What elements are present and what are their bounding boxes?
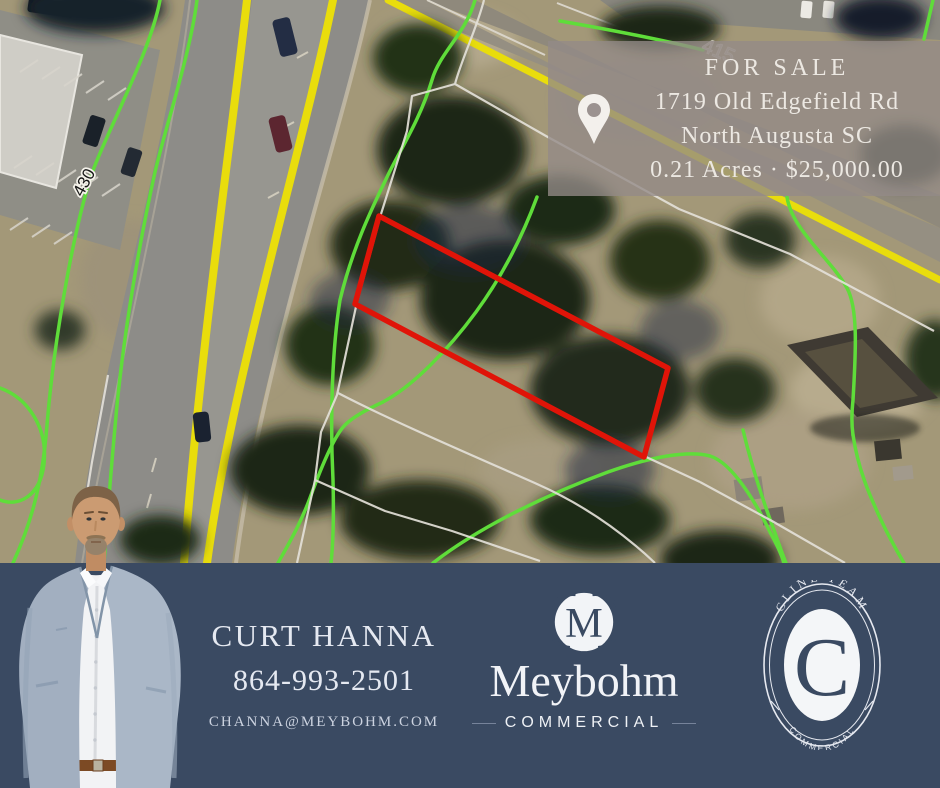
agent-phone: 864-993-2501 [194, 664, 454, 697]
badge-initial: C [794, 621, 850, 714]
agent-name: CURT HANNA [194, 619, 454, 653]
listing-card: FOR SALE 1719 Old Edgefield Rd North Aug… [548, 41, 940, 196]
agent-goatee [85, 537, 107, 555]
agent-contact-block: CURT HANNA 864-993-2501 CHANNA@MEYBOHM.C… [194, 563, 454, 731]
belt-buckle [93, 760, 103, 771]
meybohm-initial: M [565, 600, 603, 647]
badge-team-name: CLINE TEAM [772, 580, 871, 614]
brand-division-row: COMMERCIAL [464, 714, 704, 732]
svg-text:COMMERCIAL: COMMERCIAL [787, 725, 856, 750]
flyer-canvas: 430 415 FOR SALE 1719 Old Edgefield Rd N… [0, 0, 940, 788]
agent-head [67, 486, 125, 571]
cline-team-badge: C CLINE TEAM COMMERCIAL [760, 580, 884, 755]
meybohm-logo-block: M Meybohm COMMERCIAL [464, 563, 704, 732]
badge-division: COMMERCIAL [787, 725, 856, 750]
agent-photo [0, 478, 200, 788]
brand-wordmark: Meybohm [464, 657, 704, 705]
listing-details: FOR SALE 1719 Old Edgefield Rd North Aug… [640, 51, 940, 187]
listing-title: FOR SALE [640, 51, 914, 85]
division-rule-right [672, 723, 696, 724]
listing-acreage-price: 0.21 Acres · $25,000.00 [640, 153, 914, 187]
brand-division-label: COMMERCIAL [505, 714, 663, 732]
meybohm-circle-mark: M [464, 590, 704, 659]
division-rule-left [472, 723, 496, 724]
cline-team-seal-icon: C CLINE TEAM COMMERCIAL [760, 580, 884, 750]
meybohm-m-icon: M [552, 590, 616, 654]
listing-address-line2: North Augusta SC [640, 119, 914, 153]
pin-wrap [548, 92, 640, 146]
svg-text:CLINE TEAM: CLINE TEAM [772, 580, 871, 614]
agent-email: CHANNA@MEYBOHM.COM [194, 714, 454, 731]
listing-address-line1: 1719 Old Edgefield Rd [640, 85, 914, 119]
location-pin-icon [574, 92, 614, 146]
